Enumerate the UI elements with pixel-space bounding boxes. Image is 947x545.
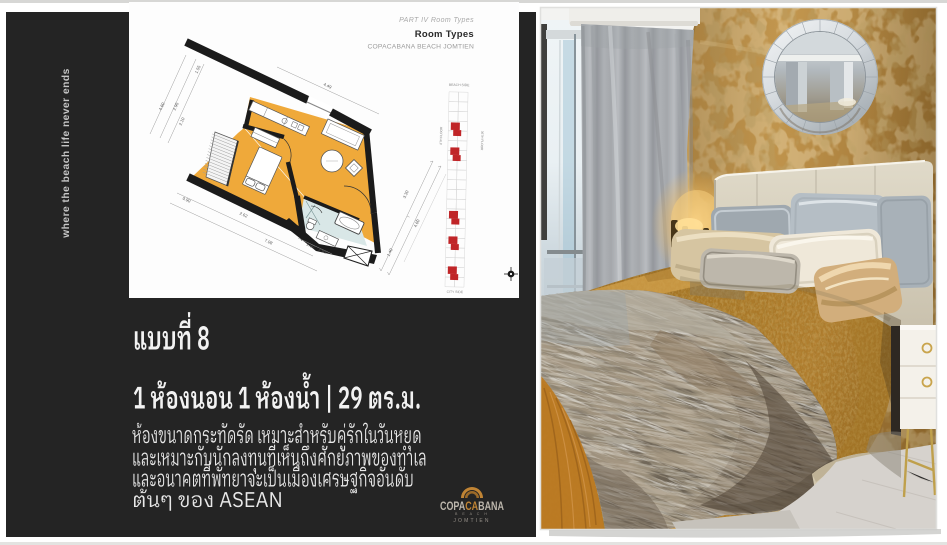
- svg-text:Room Types: Room Types: [415, 29, 474, 40]
- svg-text:COPACABANA BEACH JOMTIEN: COPACABANA BEACH JOMTIEN: [368, 44, 475, 51]
- svg-text:JOMTIEN: JOMTIEN: [453, 518, 490, 524]
- svg-text:PART IV Room Types: PART IV Room Types: [399, 17, 474, 24]
- svg-text:36TH FLOOR: 36TH FLOOR: [480, 131, 484, 151]
- svg-text:CITY SIDE: CITY SIDE: [447, 290, 464, 294]
- svg-text:B E A C H: B E A C H: [455, 512, 489, 516]
- svg-text:8TH FLOOR: 8TH FLOOR: [439, 126, 443, 145]
- svg-text:BEACH SIDE: BEACH SIDE: [449, 83, 470, 87]
- svg-text:where the beach life never end: where the beach life never ends: [61, 68, 72, 239]
